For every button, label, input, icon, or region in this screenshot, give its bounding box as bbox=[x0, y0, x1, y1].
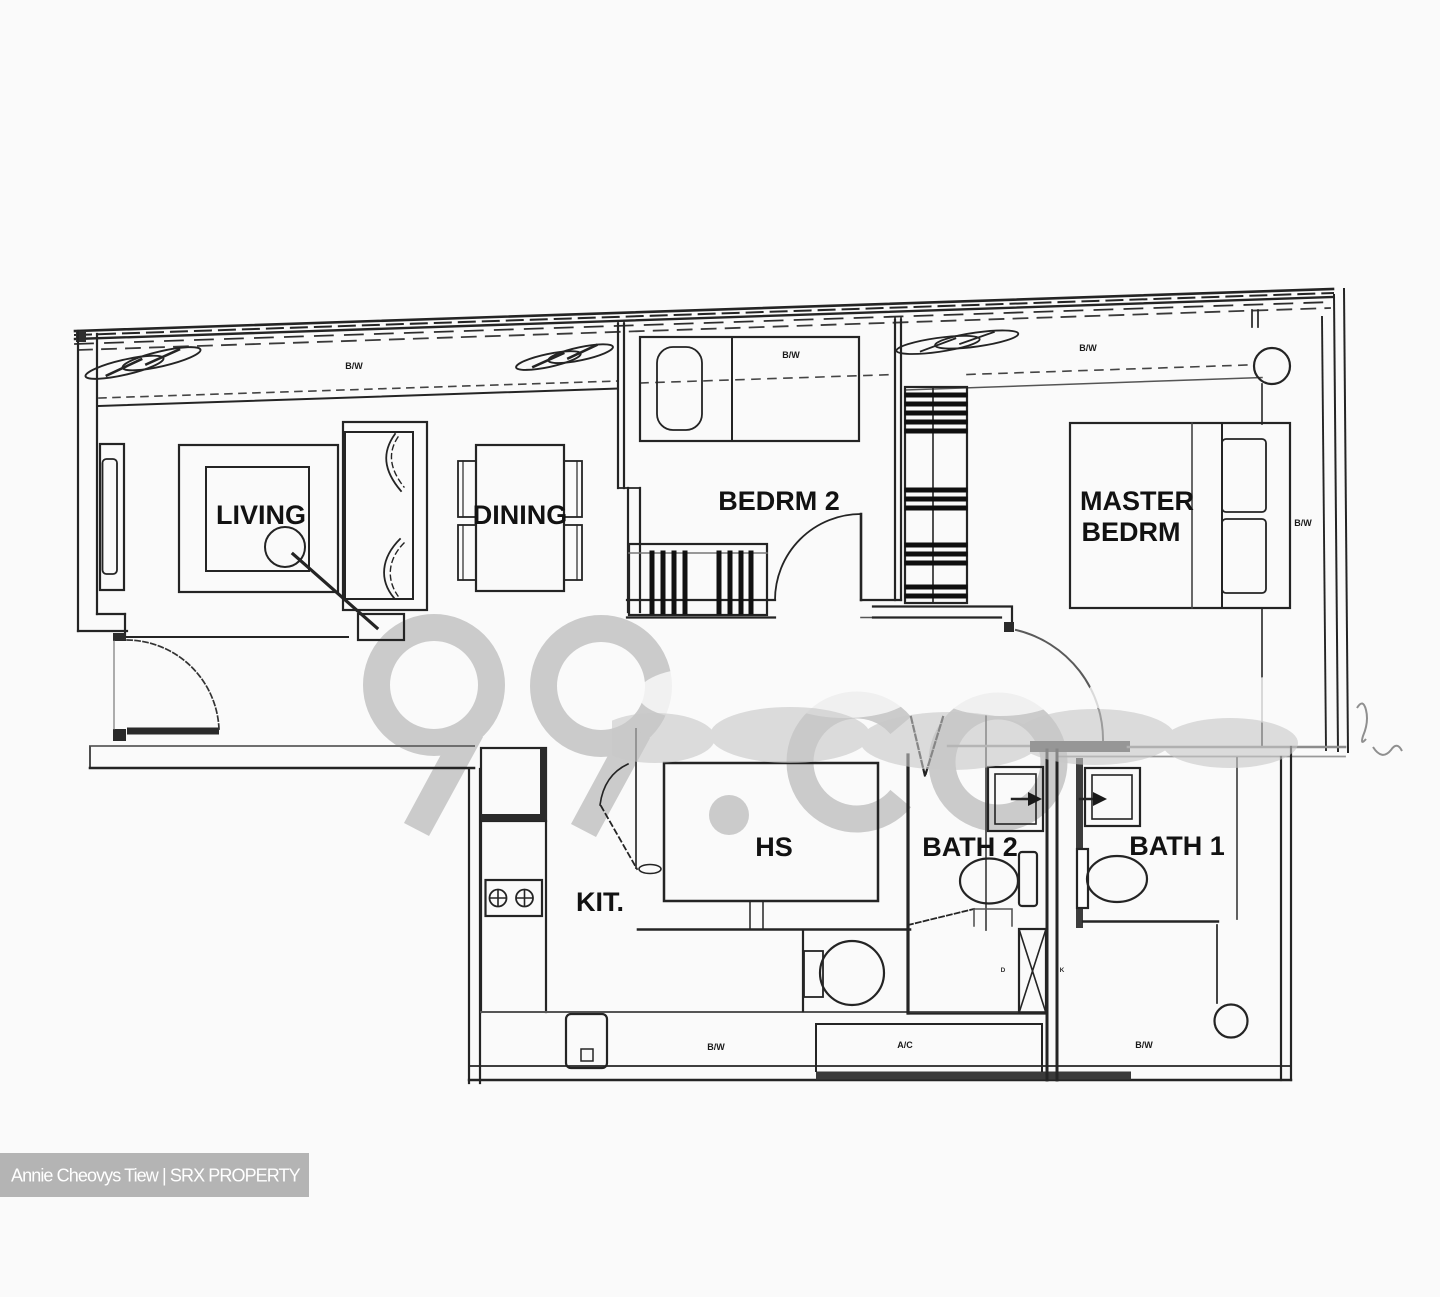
svg-text:BATH 1: BATH 1 bbox=[1129, 831, 1225, 861]
svg-text:B/W: B/W bbox=[707, 1042, 725, 1052]
svg-text:DINING: DINING bbox=[473, 500, 568, 530]
svg-text:LIVING: LIVING bbox=[216, 500, 306, 530]
svg-text:BEDRM: BEDRM bbox=[1082, 517, 1181, 547]
svg-text:KIT.: KIT. bbox=[576, 887, 624, 917]
svg-text:B/W: B/W bbox=[782, 350, 800, 360]
svg-text:BEDRM 2: BEDRM 2 bbox=[718, 486, 840, 516]
svg-text:K: K bbox=[1060, 967, 1065, 974]
svg-text:BATH 2: BATH 2 bbox=[922, 832, 1018, 862]
svg-text:B/W: B/W bbox=[1135, 1040, 1153, 1050]
svg-text:B/W: B/W bbox=[1079, 343, 1097, 353]
svg-text:D: D bbox=[1001, 967, 1006, 974]
svg-text:HS: HS bbox=[755, 832, 793, 862]
svg-text:Annie Cheovys Tiew | SRX PROPE: Annie Cheovys Tiew | SRX PROPERTY bbox=[11, 1166, 301, 1186]
svg-text:MASTER: MASTER bbox=[1080, 486, 1194, 516]
svg-text:A/C: A/C bbox=[897, 1040, 913, 1050]
svg-text:B/W: B/W bbox=[345, 361, 363, 371]
svg-text:B/W: B/W bbox=[1294, 518, 1312, 528]
